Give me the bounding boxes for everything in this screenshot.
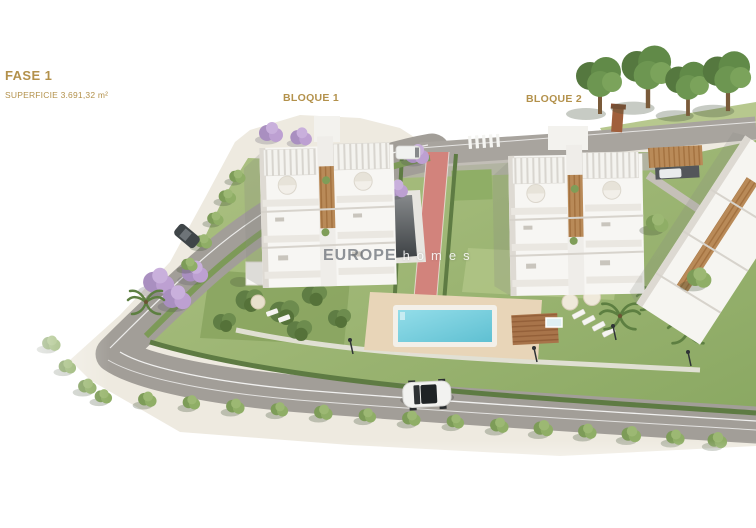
pool-step bbox=[400, 312, 405, 320]
site-aerial-render bbox=[0, 0, 756, 528]
hedge-square bbox=[451, 169, 492, 200]
white-car bbox=[399, 378, 454, 411]
wooden-carport bbox=[648, 145, 704, 180]
parasol bbox=[251, 295, 265, 309]
parasol bbox=[562, 294, 578, 310]
block1-label: BLOQUE 1 bbox=[283, 92, 339, 104]
white-van bbox=[396, 146, 420, 159]
block2-label: BLOQUE 2 bbox=[526, 93, 582, 105]
swimming-pool bbox=[398, 310, 492, 342]
big-trees bbox=[566, 46, 751, 122]
surface-area-label: SUPERFICIE 3.691,32 m² bbox=[5, 90, 108, 100]
phase-label: FASE 1 bbox=[5, 68, 52, 83]
render-page: FASE 1 SUPERFICIE 3.691,32 m² BLOQUE 1 B… bbox=[0, 0, 756, 528]
spa bbox=[546, 318, 562, 327]
